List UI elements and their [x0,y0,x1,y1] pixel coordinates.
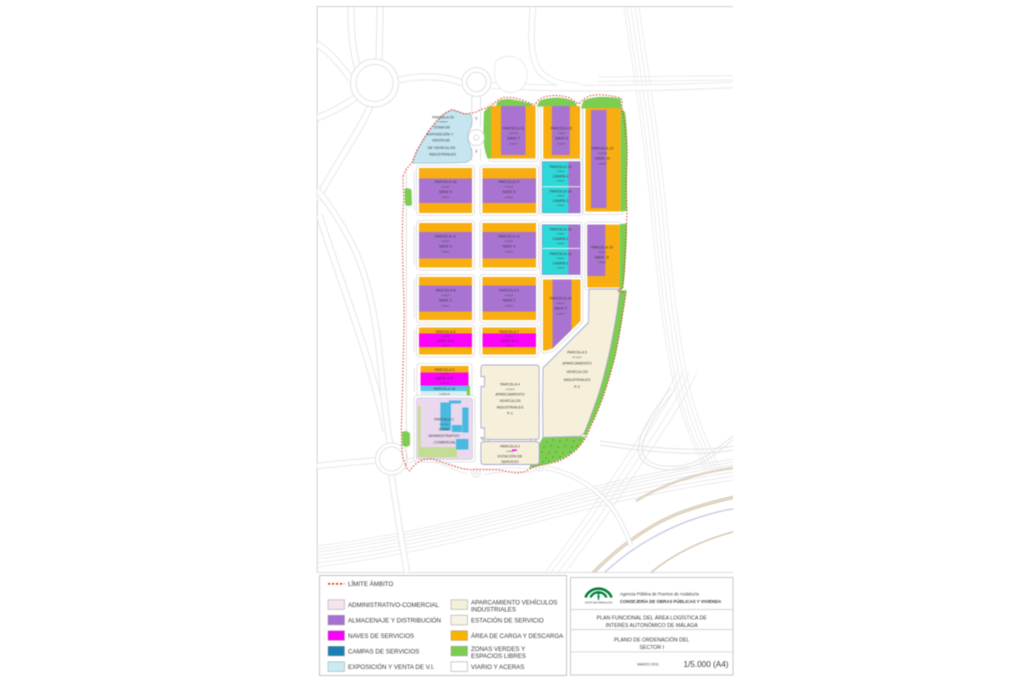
svg-text:VENTA DE: VENTA DE [432,139,451,143]
svg-text:INTERÉS AUTONÓMICO DE MÁLAGA: INTERÉS AUTONÓMICO DE MÁLAGA [606,622,699,629]
svg-text:3.380m²: 3.380m² [598,261,606,264]
svg-text:NAVE 2: NAVE 2 [503,299,516,303]
svg-text:APARCAMIENTO: APARCAMIENTO [495,393,524,397]
svg-text:NAVE 4: NAVE 4 [503,245,516,249]
svg-text:PARCELA 12: PARCELA 12 [498,235,520,239]
svg-text:32.164m²: 32.164m² [572,356,582,359]
svg-text:DE VEHÍCULOS: DE VEHÍCULOS [428,146,456,150]
svg-text:PARCELA 2: PARCELA 2 [500,445,520,449]
svg-text:1.9630m²: 1.9630m² [438,121,448,124]
svg-text:PARCELA 22: PARCELA 22 [551,127,573,131]
svg-text:4.330m²: 4.330m² [505,305,513,308]
svg-text:INDUSTRIALES: INDUSTRIALES [429,153,456,157]
svg-text:CAMPA 4: CAMPA 4 [553,175,569,179]
svg-text:EXPOSICIÓN Y VENTA DE V.I.: EXPOSICIÓN Y VENTA DE V.I. [348,664,435,671]
svg-text:1/5.000 (A4): 1/5.000 (A4) [683,660,728,669]
svg-text:APARCAMIENTO VEHÍCULOS: APARCAMIENTO VEHÍCULOS [471,600,557,607]
svg-text:4.330m²: 4.330m² [505,196,513,199]
svg-text:SERVICIO: SERVICIO [501,460,519,464]
svg-text:3.465m²: 3.465m² [556,257,564,260]
svg-text:9.000m²: 9.000m² [441,335,449,338]
svg-text:1.650m²: 1.650m² [556,180,564,183]
svg-text:VEHÍCULOS: VEHÍCULOS [566,370,588,374]
svg-text:Agencia Pública de Puertos de: Agencia Pública de Puertos de Andalucía [620,591,699,596]
svg-text:ESTACIÓN DE: ESTACIÓN DE [498,454,523,459]
svg-text:NAVE 3: NAVE 3 [439,245,452,249]
svg-text:CAMPA 3: CAMPA 3 [553,199,569,203]
svg-text:2.460m²: 2.460m² [441,345,449,348]
svg-text:3.285m²: 3.285m² [556,195,564,198]
svg-text:NAVES DE SERVICIOS: NAVES DE SERVICIOS [348,633,414,640]
svg-text:PARCELA 9: PARCELA 9 [499,289,519,293]
svg-text:INDUSTRIALES: INDUSTRIALES [497,406,524,410]
svg-text:NAVE 6: NAVE 6 [503,190,516,194]
svg-text:CAMPAS DE SERVICIOS: CAMPAS DE SERVICIOS [348,648,419,655]
svg-text:1.230 m²: 1.230 m² [440,382,449,385]
svg-text:NAVE 1: NAVE 1 [439,299,452,303]
svg-text:ESTACIÓN DE SERVICIO: ESTACIÓN DE SERVICIO [471,617,544,624]
svg-text:3.470m²: 3.470m² [556,313,564,316]
svg-text:PARCELA 17: PARCELA 17 [498,180,520,184]
svg-text:8.160m²: 8.160m² [505,240,513,243]
svg-text:P-1: P-1 [507,412,513,416]
svg-text:MARZO 2011: MARZO 2011 [637,663,659,667]
svg-text:APARCAMIENTO: APARCAMIENTO [562,362,591,366]
svg-text:4.330m²: 4.330m² [441,251,449,254]
svg-text:ÁREA DE CARGA Y DESCARGA: ÁREA DE CARGA Y DESCARGA [471,633,564,640]
svg-text:PARCELA 16: PARCELA 16 [435,180,457,184]
svg-text:8.160m²: 8.160m² [441,240,449,243]
svg-text:1.650m²: 1.650m² [556,267,564,270]
svg-text:PLAN FUNCIONAL DEL ÁREA LOGÍST: PLAN FUNCIONAL DEL ÁREA LOGÍSTICA DE [597,615,708,622]
svg-text:ZONAS VERDES Y: ZONAS VERDES Y [471,646,525,653]
svg-text:ZONA: ZONA [439,428,450,432]
svg-text:10.373m²: 10.373m² [509,132,519,135]
svg-text:LÍMITE ÁMBITO: LÍMITE ÁMBITO [348,581,393,588]
svg-text:6.960m²: 6.960m² [556,302,564,305]
svg-text:3.285m²: 3.285m² [556,170,564,173]
svg-text:PARCELA 19: PARCELA 19 [550,165,572,169]
svg-text:NAVE 9: NAVE 9 [554,307,567,311]
svg-text:7.065m²: 7.065m² [557,132,565,135]
svg-text:PARCELA 21: PARCELA 21 [503,127,525,131]
svg-text:INDUSTRIALES: INDUSTRIALES [471,607,516,614]
svg-text:PARCELA 15: PARCELA 15 [591,246,613,250]
svg-text:ZONA DE: ZONA DE [434,126,451,130]
svg-text:PARCELA 1: PARCELA 1 [434,418,454,422]
svg-text:8.160m²: 8.160m² [441,186,449,189]
svg-text:3.530m²: 3.530m² [557,143,565,146]
svg-text:13.873m²: 13.873m² [598,152,608,155]
svg-text:PARCELA 20: PARCELA 20 [432,116,454,120]
svg-text:JUNTA DE ANDALUCIA: JUNTA DE ANDALUCIA [585,601,613,605]
svg-text:NAVE 7: NAVE 7 [507,137,520,141]
svg-text:6.060m²: 6.060m² [598,163,606,166]
svg-text:PARCELA 10: PARCELA 10 [550,297,572,301]
svg-text:SECTOR I: SECTOR I [639,645,664,651]
svg-text:NAVE 11: NAVE 11 [595,256,610,260]
svg-text:12.954m²: 12.954m² [505,388,515,391]
svg-text:PARCELA 6: PARCELA 6 [436,330,456,334]
svg-text:PARCELA 7: PARCELA 7 [499,330,519,334]
svg-text:PARCELA 5: PARCELA 5 [567,351,587,355]
svg-text:8.160m²: 8.160m² [505,186,513,189]
svg-text:8.160m²: 8.160m² [505,294,513,297]
svg-text:ESPACIOS LIBRES: ESPACIOS LIBRES [471,653,526,660]
svg-text:CAMPA 2: CAMPA 2 [553,237,569,241]
svg-text:NAVE 8: NAVE 8 [555,137,568,141]
svg-text:6.330m²: 6.330m² [509,143,517,146]
svg-text:1.210 m²: 1.210 m² [439,392,450,396]
svg-text:CONSEJERÍA DE OBRAS PÚBLICAS Y: CONSEJERÍA DE OBRAS PÚBLICAS Y VIVIENDA [620,599,722,604]
svg-text:ADMINISTRATIVO-COMERCIAL: ADMINISTRATIVO-COMERCIAL [348,602,440,609]
svg-text:PARCELA 3: PARCELA 3 [435,368,455,372]
svg-text:1.650m²: 1.650m² [556,242,564,245]
svg-text:9.000m²: 9.000m² [505,335,513,338]
svg-text:PARCELA 23: PARCELA 23 [592,147,614,151]
svg-text:VIARIO Y ACERAS: VIARIO Y ACERAS [471,664,524,671]
svg-text:4.330m²: 4.330m² [505,251,513,254]
svg-text:CAMPA 1: CAMPA 1 [553,262,569,266]
svg-text:7.265m²: 7.265m² [598,251,606,254]
svg-text:PARCELA 1b: PARCELA 1b [434,387,456,391]
svg-text:3.465m²: 3.465m² [556,233,564,236]
svg-text:NAVE 5: NAVE 5 [439,190,452,194]
svg-text:8.160m²: 8.160m² [441,294,449,297]
svg-text:INDUSTRIALES: INDUSTRIALES [564,378,591,382]
svg-text:PARCELA 8: PARCELA 8 [436,289,456,293]
svg-text:2.460m²: 2.460m² [505,345,513,348]
svg-text:ALMACENAJE Y DISTRIBUCIÓN: ALMACENAJE Y DISTRIBUCIÓN [348,617,441,624]
svg-text:ADMINISTRATIVO: ADMINISTRATIVO [428,434,459,438]
svg-text:PARCELA 13: PARCELA 13 [550,252,572,256]
svg-text:NAVE S-2: NAVE S-2 [501,339,518,343]
svg-text:4.500m²: 4.500m² [440,373,448,376]
svg-text:PARCELA 4: PARCELA 4 [500,383,520,387]
svg-text:1.650m²: 1.650m² [556,204,564,207]
svg-text:EXPOSICIÓN Y: EXPOSICIÓN Y [427,132,454,137]
svg-text:NAVE 10: NAVE 10 [595,157,610,161]
svg-text:PARCELA 11: PARCELA 11 [435,235,457,239]
svg-text:4.330m²: 4.330m² [441,305,449,308]
svg-text:4.330m²: 4.330m² [441,196,449,199]
svg-text:P-2: P-2 [574,385,580,389]
svg-text:PARCELA 14: PARCELA 14 [550,228,572,232]
svg-text:13.273m²: 13.273m² [439,423,449,426]
svg-text:PLANO DE ORDENACIÓN DEL: PLANO DE ORDENACIÓN DEL [614,637,689,644]
svg-text:NAVE S-1: NAVE S-1 [437,339,454,343]
svg-text:PARCELA 18: PARCELA 18 [550,190,572,194]
svg-text:- COMERCIAL: - COMERCIAL [432,441,456,445]
svg-text:VEHÍCULOS: VEHÍCULOS [499,399,521,403]
svg-text:NAVE S-3: NAVE S-3 [436,377,453,381]
